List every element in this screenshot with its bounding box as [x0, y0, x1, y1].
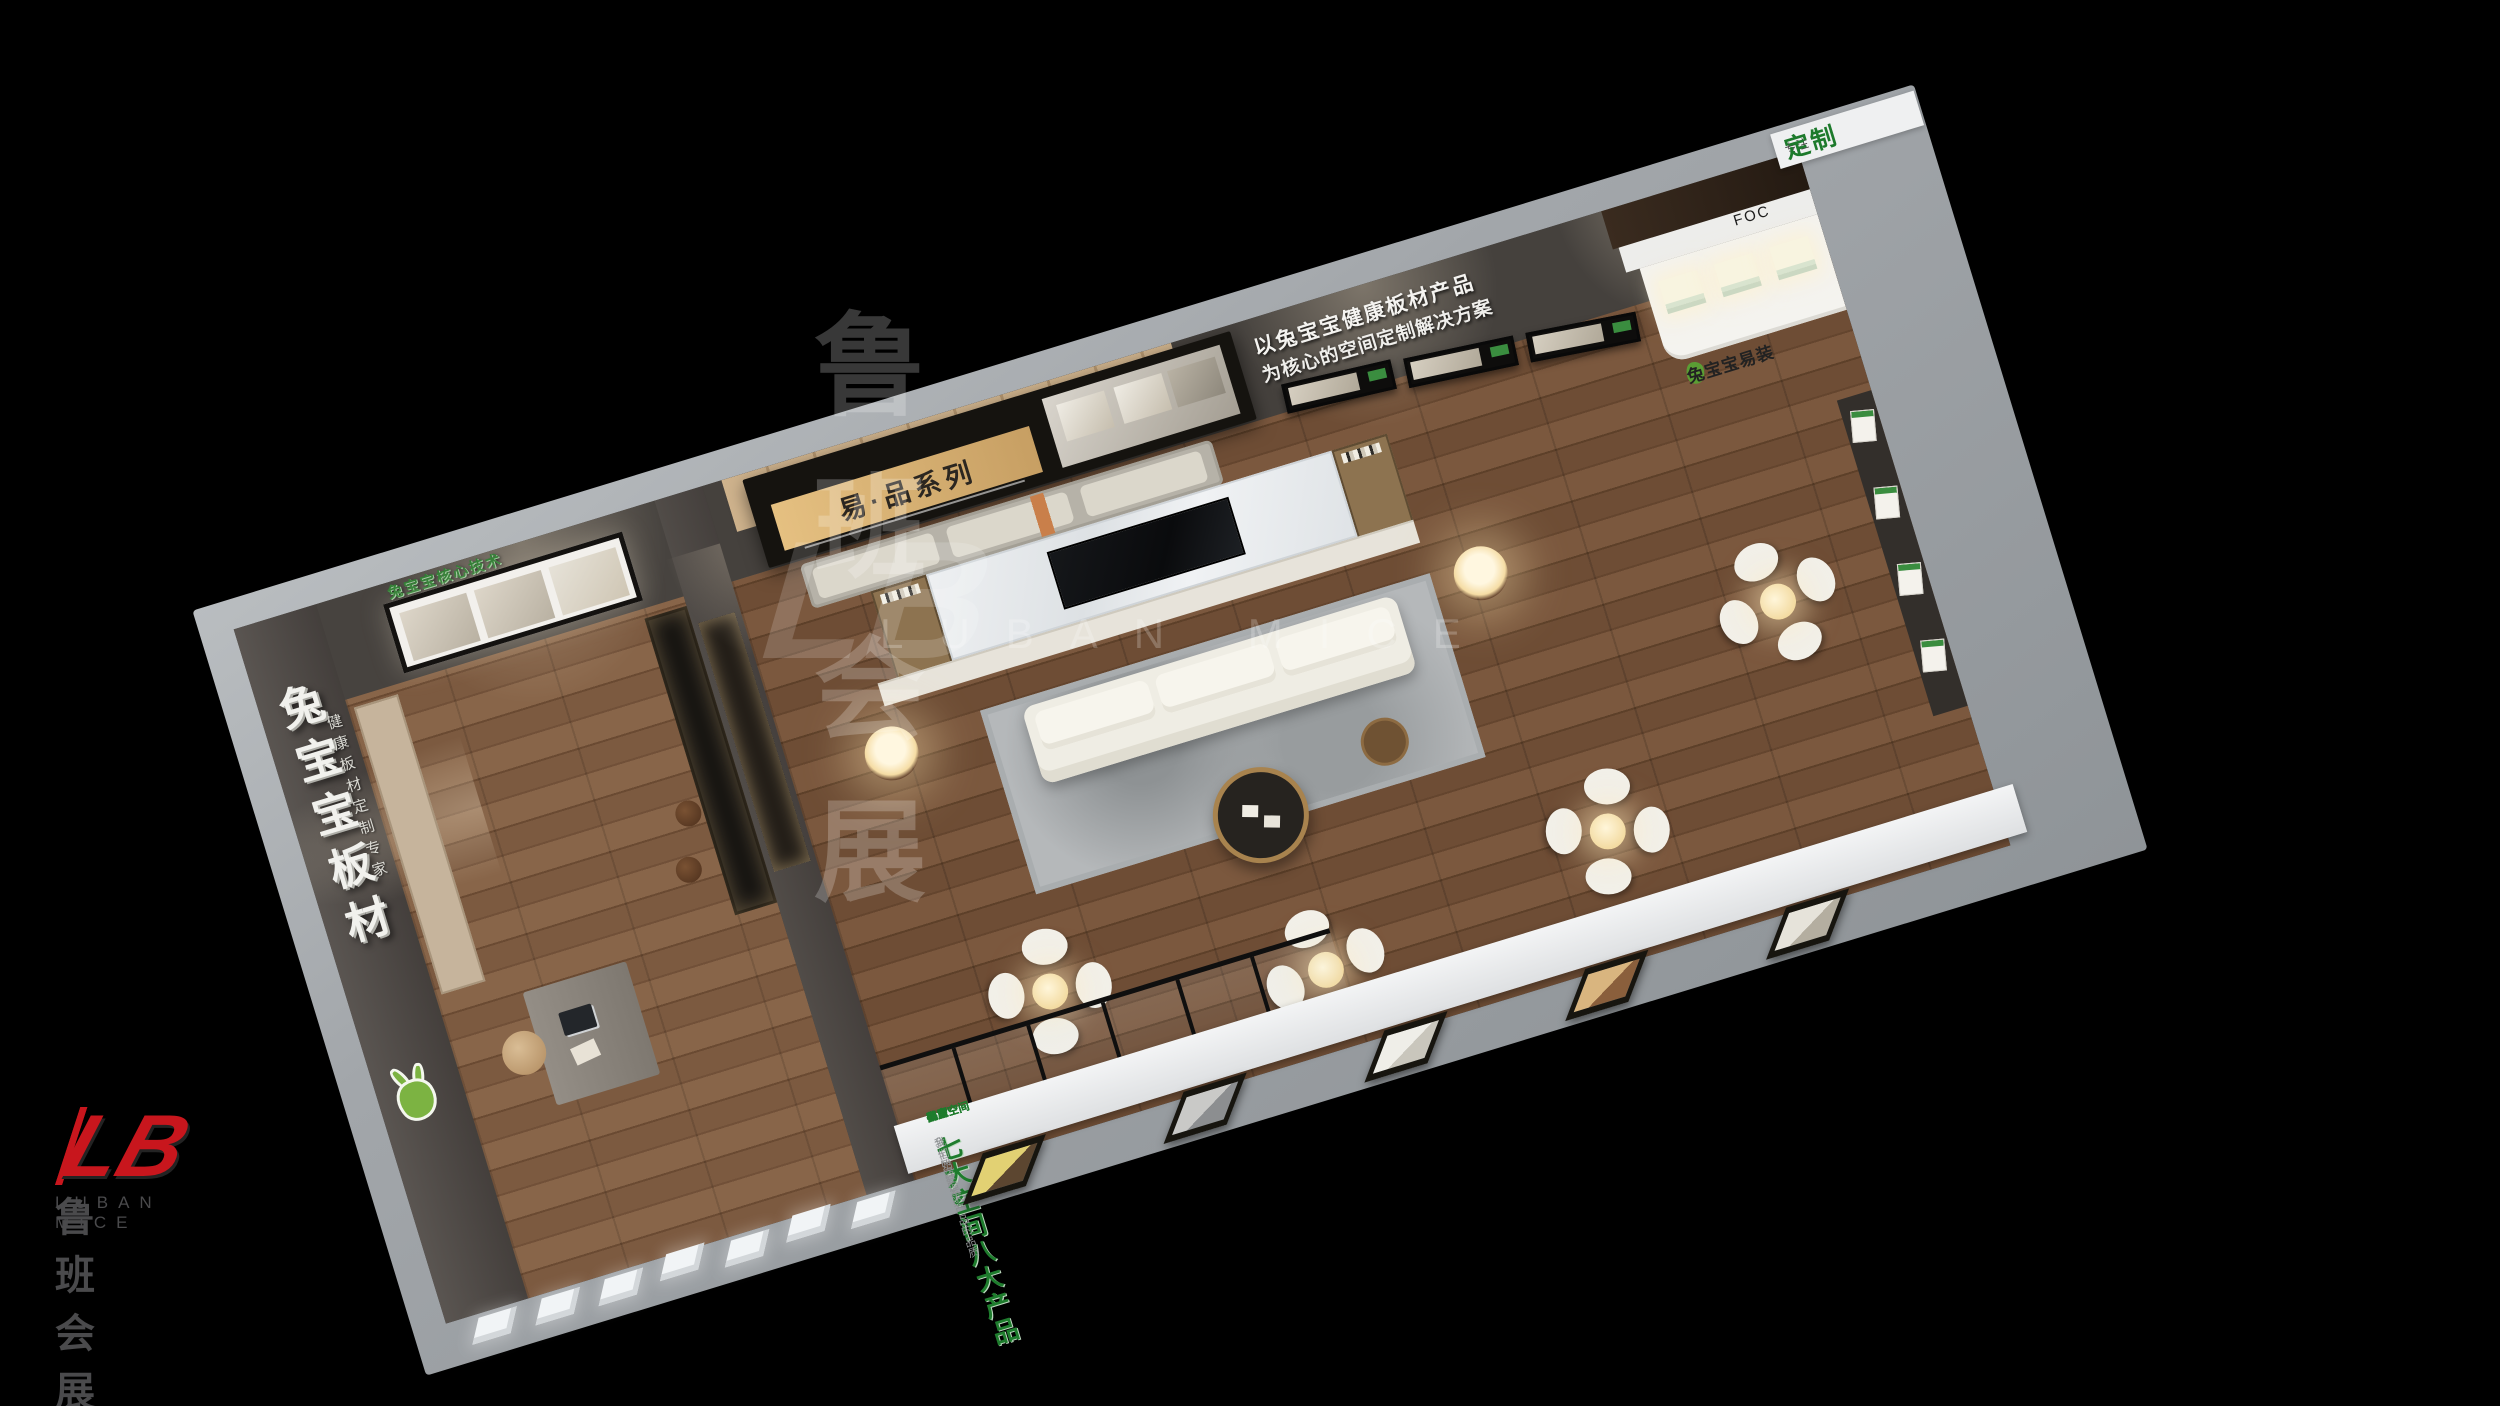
sphere-lamp — [1589, 813, 1626, 850]
chair-cluster — [1542, 765, 1674, 897]
lightbox-photo — [548, 547, 630, 615]
magazine — [570, 1038, 601, 1065]
product-poster — [1873, 486, 1900, 520]
board-logo-chip — [1490, 344, 1510, 358]
chair — [1020, 926, 1070, 967]
facade-light-block — [725, 1229, 769, 1268]
board-logo-chip — [1612, 320, 1632, 333]
chair — [986, 971, 1027, 1021]
table-decor — [1242, 805, 1258, 817]
screen-photo — [1056, 391, 1115, 442]
board-sample-stack — [1714, 253, 1762, 297]
product-poster — [1920, 639, 1947, 673]
product-poster — [1850, 409, 1877, 443]
facade-light-block — [535, 1287, 579, 1326]
screen-photo — [1167, 357, 1226, 408]
corner-logo-brand-en: LUBAN MICE — [55, 1193, 162, 1233]
corner-sign: 专注 定制 — [1770, 91, 1924, 169]
chair — [1545, 808, 1582, 855]
screen-photo — [1113, 373, 1172, 424]
render-canvas: 兔宝宝板材 健康板材定制专家 兔宝宝核心技术 — [0, 0, 2500, 1406]
lightbox-photo — [474, 570, 556, 638]
chair — [1633, 806, 1670, 853]
chair — [1584, 768, 1631, 805]
exhibition-booth: 兔宝宝板材 健康板材定制专家 兔宝宝核心技术 — [192, 84, 2147, 1375]
books — [1341, 442, 1382, 463]
watermark-brand-en: LUBAN MICE — [880, 610, 1497, 658]
facade-light-block — [599, 1268, 643, 1307]
laptop — [558, 1003, 598, 1036]
lightbox-photo — [399, 593, 481, 661]
watermark-brand-cn: 鲁班会展 — [814, 276, 946, 924]
board-sample-stack — [1769, 236, 1817, 280]
facade-light-block — [472, 1306, 516, 1345]
board-sample-stack — [1658, 270, 1706, 314]
sphere-lamp — [1754, 577, 1803, 626]
facade-light-block — [851, 1190, 895, 1229]
board-logo-chip — [1367, 368, 1387, 382]
product-poster — [1897, 562, 1924, 596]
chair — [1585, 858, 1632, 895]
logo-letters: LB — [55, 1106, 198, 1185]
sphere-lamp — [1030, 971, 1070, 1011]
corner-sign-label: 定制 — [1780, 116, 1842, 166]
